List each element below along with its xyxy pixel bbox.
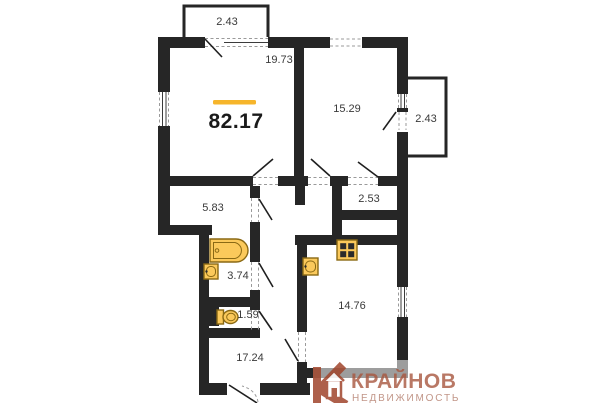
storage-area-label: 2.53 <box>358 193 379 205</box>
balcony-top-area-label: 2.43 <box>216 16 237 28</box>
hallway-area-label: 17.24 <box>236 352 264 364</box>
bathtub-icon <box>210 239 248 262</box>
kitchen-door <box>285 332 306 362</box>
cabinet-area-label: 5.83 <box>202 202 223 214</box>
living-area-label: 19.73 <box>265 54 293 66</box>
bedroom-door <box>308 159 330 185</box>
walls <box>158 37 408 395</box>
toilet-icon <box>217 310 238 324</box>
bedroom-area-label: 15.29 <box>333 103 361 115</box>
storage-door <box>348 162 378 185</box>
kitchen-area-label: 14.76 <box>338 300 366 312</box>
floor-plan-image: 2.43 19.73 15.29 2.43 5.83 2.53 3.74 1.5… <box>0 0 605 403</box>
bathroom-sink-icon <box>204 264 218 279</box>
living-door <box>253 159 278 185</box>
kitchen-window <box>399 287 407 317</box>
bathroom-door <box>252 262 274 290</box>
entrance-door <box>229 385 258 403</box>
kitchen-sink-icon <box>303 258 318 275</box>
wc-area-label: 1.59 <box>237 309 258 321</box>
bathroom-area-label: 3.74 <box>227 270 248 282</box>
balcony-door-window <box>205 39 268 58</box>
floor-plan-page: 2.43 19.73 15.29 2.43 5.83 2.53 3.74 1.5… <box>0 0 605 403</box>
living-window <box>160 92 169 126</box>
stove-icon <box>337 240 357 260</box>
cabinet-door <box>252 198 273 222</box>
bedroom-window <box>330 39 362 46</box>
watermark-logo: КРАЙНОВ НЕДВИЖИМОСТЬ <box>313 360 460 403</box>
brand-name: КРАЙНОВ <box>351 369 456 393</box>
house-door <box>332 388 338 398</box>
total-area-label: 82.17 <box>208 110 263 133</box>
brand-tagline: НЕДВИЖИМОСТЬ <box>352 393 460 403</box>
balcony-right-area-label: 2.43 <box>415 113 436 125</box>
total-area-accent-bar <box>213 100 256 105</box>
